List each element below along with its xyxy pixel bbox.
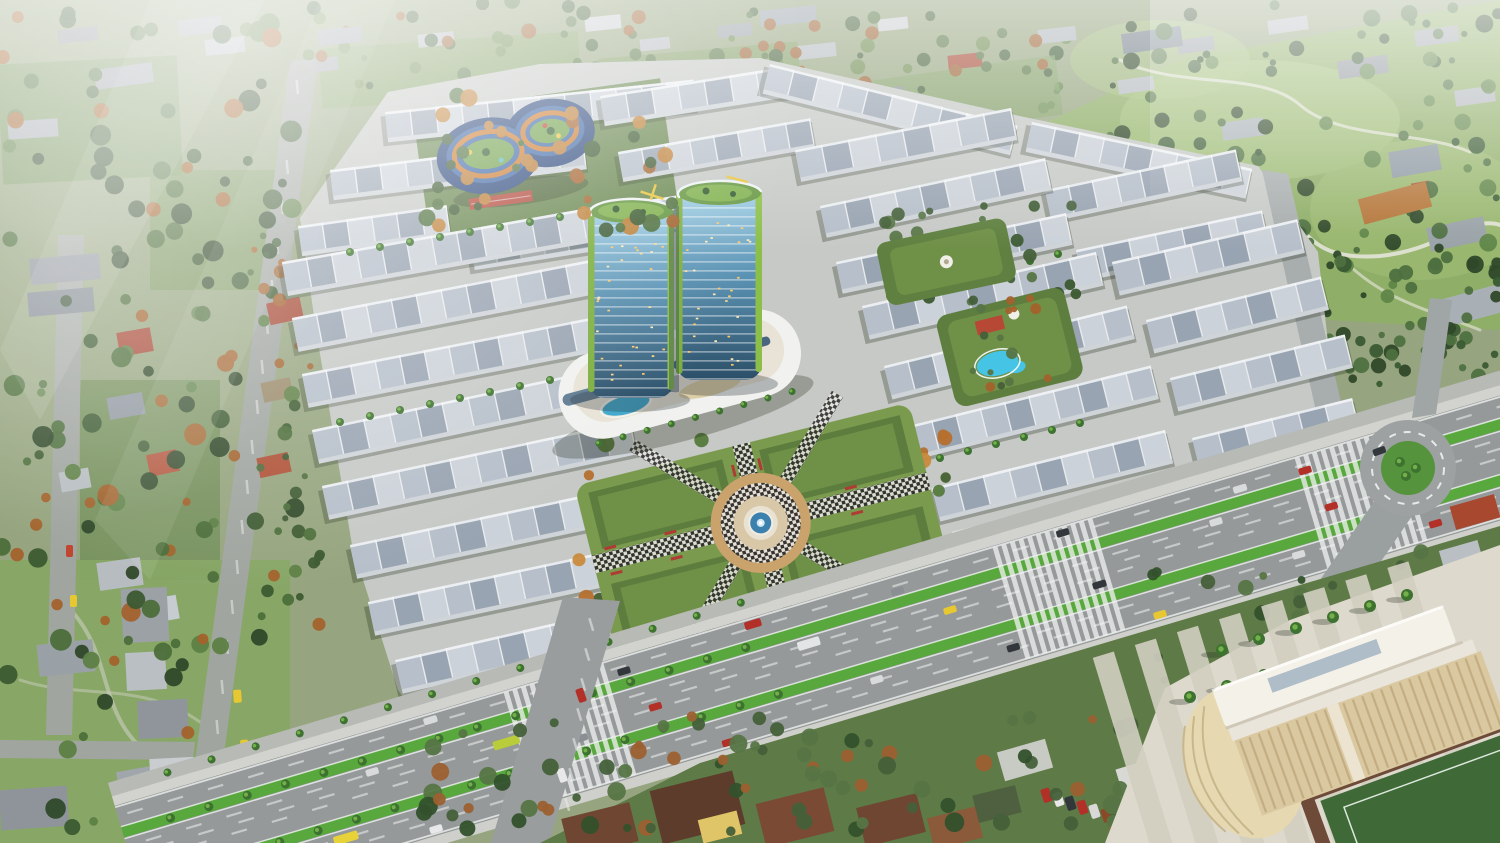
hillside-park xyxy=(1456,340,1465,349)
palm-tree xyxy=(1413,465,1418,470)
old-town-west xyxy=(51,599,62,610)
old-town-west xyxy=(59,740,77,758)
hillside-park xyxy=(1395,362,1401,368)
south-band xyxy=(841,749,854,762)
hillside-park xyxy=(1482,362,1489,369)
courtyard-gardens xyxy=(980,331,988,339)
palm-tree xyxy=(1329,613,1334,618)
south-band xyxy=(581,816,599,834)
roundabout xyxy=(1360,420,1456,516)
old-town-west xyxy=(197,634,208,645)
south-band xyxy=(1259,572,1267,580)
old-town-west xyxy=(50,629,72,651)
palm-tree xyxy=(1055,251,1059,255)
old-town-west xyxy=(10,548,23,561)
palm-tree xyxy=(1255,635,1260,640)
hillside-park xyxy=(1369,344,1383,358)
south-band xyxy=(1018,749,1032,763)
old-town-west xyxy=(251,629,268,646)
south-band xyxy=(820,770,837,787)
courtyard-gardens xyxy=(1071,289,1082,300)
south-band xyxy=(878,757,896,775)
south-band xyxy=(513,723,527,737)
palm-tree xyxy=(1218,646,1223,651)
hillside-park xyxy=(1376,381,1382,387)
south-band xyxy=(618,764,632,778)
south-band xyxy=(521,800,538,817)
south-band xyxy=(976,755,993,772)
south-band xyxy=(572,793,580,801)
courtyard-gardens xyxy=(1044,374,1052,382)
south-band xyxy=(750,741,760,751)
south-band xyxy=(1070,782,1085,797)
old-town-west xyxy=(233,689,242,703)
south-band xyxy=(1238,580,1254,596)
south-band xyxy=(945,813,965,833)
old-town-west xyxy=(124,636,133,645)
south-band xyxy=(741,783,751,793)
courtyard-gardens xyxy=(1065,279,1076,290)
south-band xyxy=(494,774,511,791)
south-band xyxy=(1064,816,1078,830)
hillside-park xyxy=(1394,335,1406,347)
south-band xyxy=(463,803,473,813)
south-band xyxy=(726,826,736,836)
hillside-park xyxy=(1405,321,1414,330)
south-band xyxy=(805,766,821,782)
south-band xyxy=(1152,567,1162,577)
palm-tree xyxy=(1366,602,1371,607)
palm-tree xyxy=(1077,420,1081,424)
south-band xyxy=(433,793,446,806)
south-band xyxy=(770,722,784,736)
courtyard-gardens xyxy=(1006,347,1018,359)
aerial-masterplan-rendering xyxy=(0,0,1500,843)
courtyard-gardens xyxy=(1011,306,1017,312)
south-band xyxy=(1201,575,1215,589)
south-band xyxy=(796,813,812,829)
old-town-west xyxy=(109,656,119,666)
courtyard-gardens xyxy=(985,382,995,392)
south-band xyxy=(797,748,812,763)
south-band xyxy=(635,741,643,749)
courtyard-gardens xyxy=(1006,296,1015,305)
twin-towers xyxy=(731,358,734,360)
palm-tree xyxy=(1292,624,1297,629)
twin-towers xyxy=(737,360,740,362)
hillside-park xyxy=(1361,292,1367,298)
hillside-park xyxy=(1355,336,1365,346)
courtyard-gardens xyxy=(1005,377,1014,386)
palm-tree xyxy=(965,448,969,452)
south-band xyxy=(1023,711,1036,724)
south-band xyxy=(836,781,851,796)
south-band xyxy=(459,820,475,836)
old-town-west xyxy=(312,618,325,631)
south-band xyxy=(550,718,559,727)
courtyard-gardens xyxy=(987,369,993,375)
twin-towers xyxy=(736,316,739,318)
old-town-west xyxy=(164,668,182,686)
old-town-west xyxy=(83,652,100,669)
south-band xyxy=(657,720,669,732)
south-band xyxy=(425,739,442,756)
central-park xyxy=(933,485,945,497)
south-band xyxy=(431,763,449,781)
central-park xyxy=(938,429,949,440)
palm-tree xyxy=(1403,473,1408,478)
south-band xyxy=(1328,581,1337,590)
courtyard-gardens xyxy=(1030,303,1041,314)
courtyard-gardens xyxy=(976,304,985,313)
courtyard-gardens xyxy=(970,368,976,374)
old-town-west xyxy=(70,595,77,607)
central-park xyxy=(572,553,585,566)
old-town-west xyxy=(282,594,294,606)
south-band xyxy=(1413,544,1428,559)
palm-tree xyxy=(1397,459,1402,464)
hillside-park xyxy=(1379,332,1385,338)
south-band xyxy=(907,802,918,813)
old-town-west xyxy=(0,740,195,760)
palm-tree xyxy=(993,441,997,445)
hillside-park xyxy=(1334,256,1346,268)
south-band xyxy=(646,823,656,833)
hillside-park xyxy=(1326,261,1334,269)
south-band xyxy=(1298,576,1306,584)
south-band xyxy=(729,735,747,753)
south-band xyxy=(458,729,467,738)
south-band xyxy=(607,782,626,801)
old-town-west xyxy=(89,817,98,826)
south-band xyxy=(511,813,526,828)
old-town-west xyxy=(212,637,229,654)
atmosphere xyxy=(1150,0,1500,230)
hillside-park xyxy=(1459,364,1466,371)
old-town-west xyxy=(100,616,110,626)
hillside-park xyxy=(1491,351,1498,358)
courtyard-gardens xyxy=(1026,295,1034,303)
south-band xyxy=(416,805,432,821)
south-band xyxy=(542,758,559,775)
old-town-west xyxy=(181,726,194,739)
old-town-west xyxy=(258,612,266,620)
hillside-park xyxy=(1386,349,1398,361)
courtyard-gardens xyxy=(1023,249,1036,262)
courtyard-gardens xyxy=(1027,272,1037,282)
hillside-park xyxy=(1371,358,1386,373)
central-park xyxy=(940,472,951,483)
south-band xyxy=(667,752,681,766)
south-band xyxy=(865,739,873,747)
south-band xyxy=(446,809,458,821)
twin-towers xyxy=(731,364,734,366)
south-band xyxy=(1050,788,1063,801)
old-town-west xyxy=(28,548,47,567)
south-band xyxy=(993,814,1010,831)
south-band xyxy=(1088,715,1096,723)
south-band xyxy=(687,711,697,721)
hillside-park xyxy=(1398,265,1413,280)
hillside-park xyxy=(1428,259,1443,274)
hillside-park xyxy=(1441,251,1453,263)
old-town-west xyxy=(154,642,172,660)
south-band xyxy=(623,824,631,832)
south-band xyxy=(913,781,930,798)
south-band xyxy=(753,712,767,726)
south-band xyxy=(599,759,615,775)
old-town-west xyxy=(296,593,304,601)
hillside-park xyxy=(1467,258,1479,270)
old-town-west xyxy=(45,798,66,819)
old-town-west xyxy=(142,600,160,618)
old-town-west xyxy=(137,699,189,740)
twin-towers xyxy=(728,336,731,338)
courtyard-gardens xyxy=(968,295,978,305)
south-band xyxy=(801,728,818,745)
south-band xyxy=(855,779,868,792)
hillside-park xyxy=(1405,282,1417,294)
old-town-west xyxy=(64,819,80,835)
palm-tree xyxy=(937,455,941,459)
palm-tree xyxy=(1403,591,1408,596)
hillside-park xyxy=(1348,374,1357,383)
south-band xyxy=(844,733,859,748)
hillside-park xyxy=(1353,357,1369,373)
courtyard-gardens xyxy=(997,334,1004,341)
old-town-west xyxy=(79,732,88,741)
courtyard-gardens xyxy=(997,382,1005,390)
hillside-park xyxy=(1381,289,1395,303)
south-band xyxy=(857,817,869,829)
south-band xyxy=(1007,715,1018,726)
palm-tree xyxy=(1186,693,1191,698)
south-band xyxy=(718,755,729,766)
roundabout xyxy=(1381,441,1435,495)
hillside-park xyxy=(1461,312,1472,323)
palm-tree xyxy=(1049,427,1053,431)
palm-tree xyxy=(1021,434,1025,438)
old-town-west xyxy=(171,639,181,649)
hillside-park xyxy=(1465,286,1474,295)
old-town-west xyxy=(97,694,113,710)
masterplan-scene xyxy=(0,0,1500,843)
south-band xyxy=(940,798,955,813)
south-band xyxy=(537,801,548,812)
